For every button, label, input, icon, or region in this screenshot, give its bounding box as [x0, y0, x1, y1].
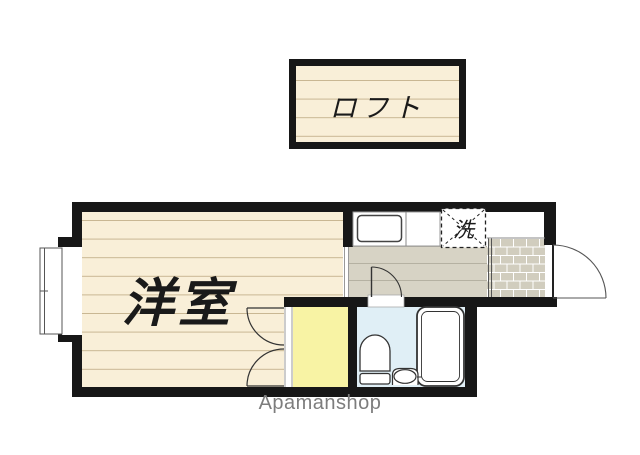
floorplan-page: ロフト 洋室 洗 Apamanshop: [0, 0, 640, 455]
wall-closet-right: [348, 307, 357, 387]
bathtub-outer: [417, 307, 464, 386]
bathroom-threshold: [368, 295, 404, 307]
toilet-base: [360, 374, 390, 385]
toilet: [360, 335, 390, 384]
wall-band-left: [284, 297, 368, 307]
loft-label: ロフト: [289, 86, 466, 125]
wall-window-stub-top: [58, 237, 82, 247]
wall-bathroom-right: [465, 297, 477, 397]
kitchen-sink: [358, 216, 402, 242]
bathtub: [417, 307, 464, 386]
washbasin-bowl: [394, 370, 416, 384]
toilet-bowl: [360, 335, 390, 371]
wall-room-kitchen: [343, 202, 353, 247]
wall-right-upper: [544, 202, 556, 245]
entrance-genkan-brick: [487, 238, 545, 297]
hallway-floor: [349, 246, 487, 297]
entrance-door: [553, 245, 606, 298]
washbasin: [393, 369, 423, 386]
wall-band-right: [404, 297, 557, 307]
western-room-label: 洋室: [73, 261, 283, 336]
room-hall-partition: [344, 247, 349, 297]
kitchen-counter: [353, 212, 440, 246]
washer-label: 洗: [441, 214, 486, 244]
entrance-door-swing: [553, 245, 606, 298]
floorplan-svg: [0, 0, 640, 455]
watermark-text: Apamanshop: [250, 392, 390, 415]
closet-floor: [293, 307, 348, 387]
